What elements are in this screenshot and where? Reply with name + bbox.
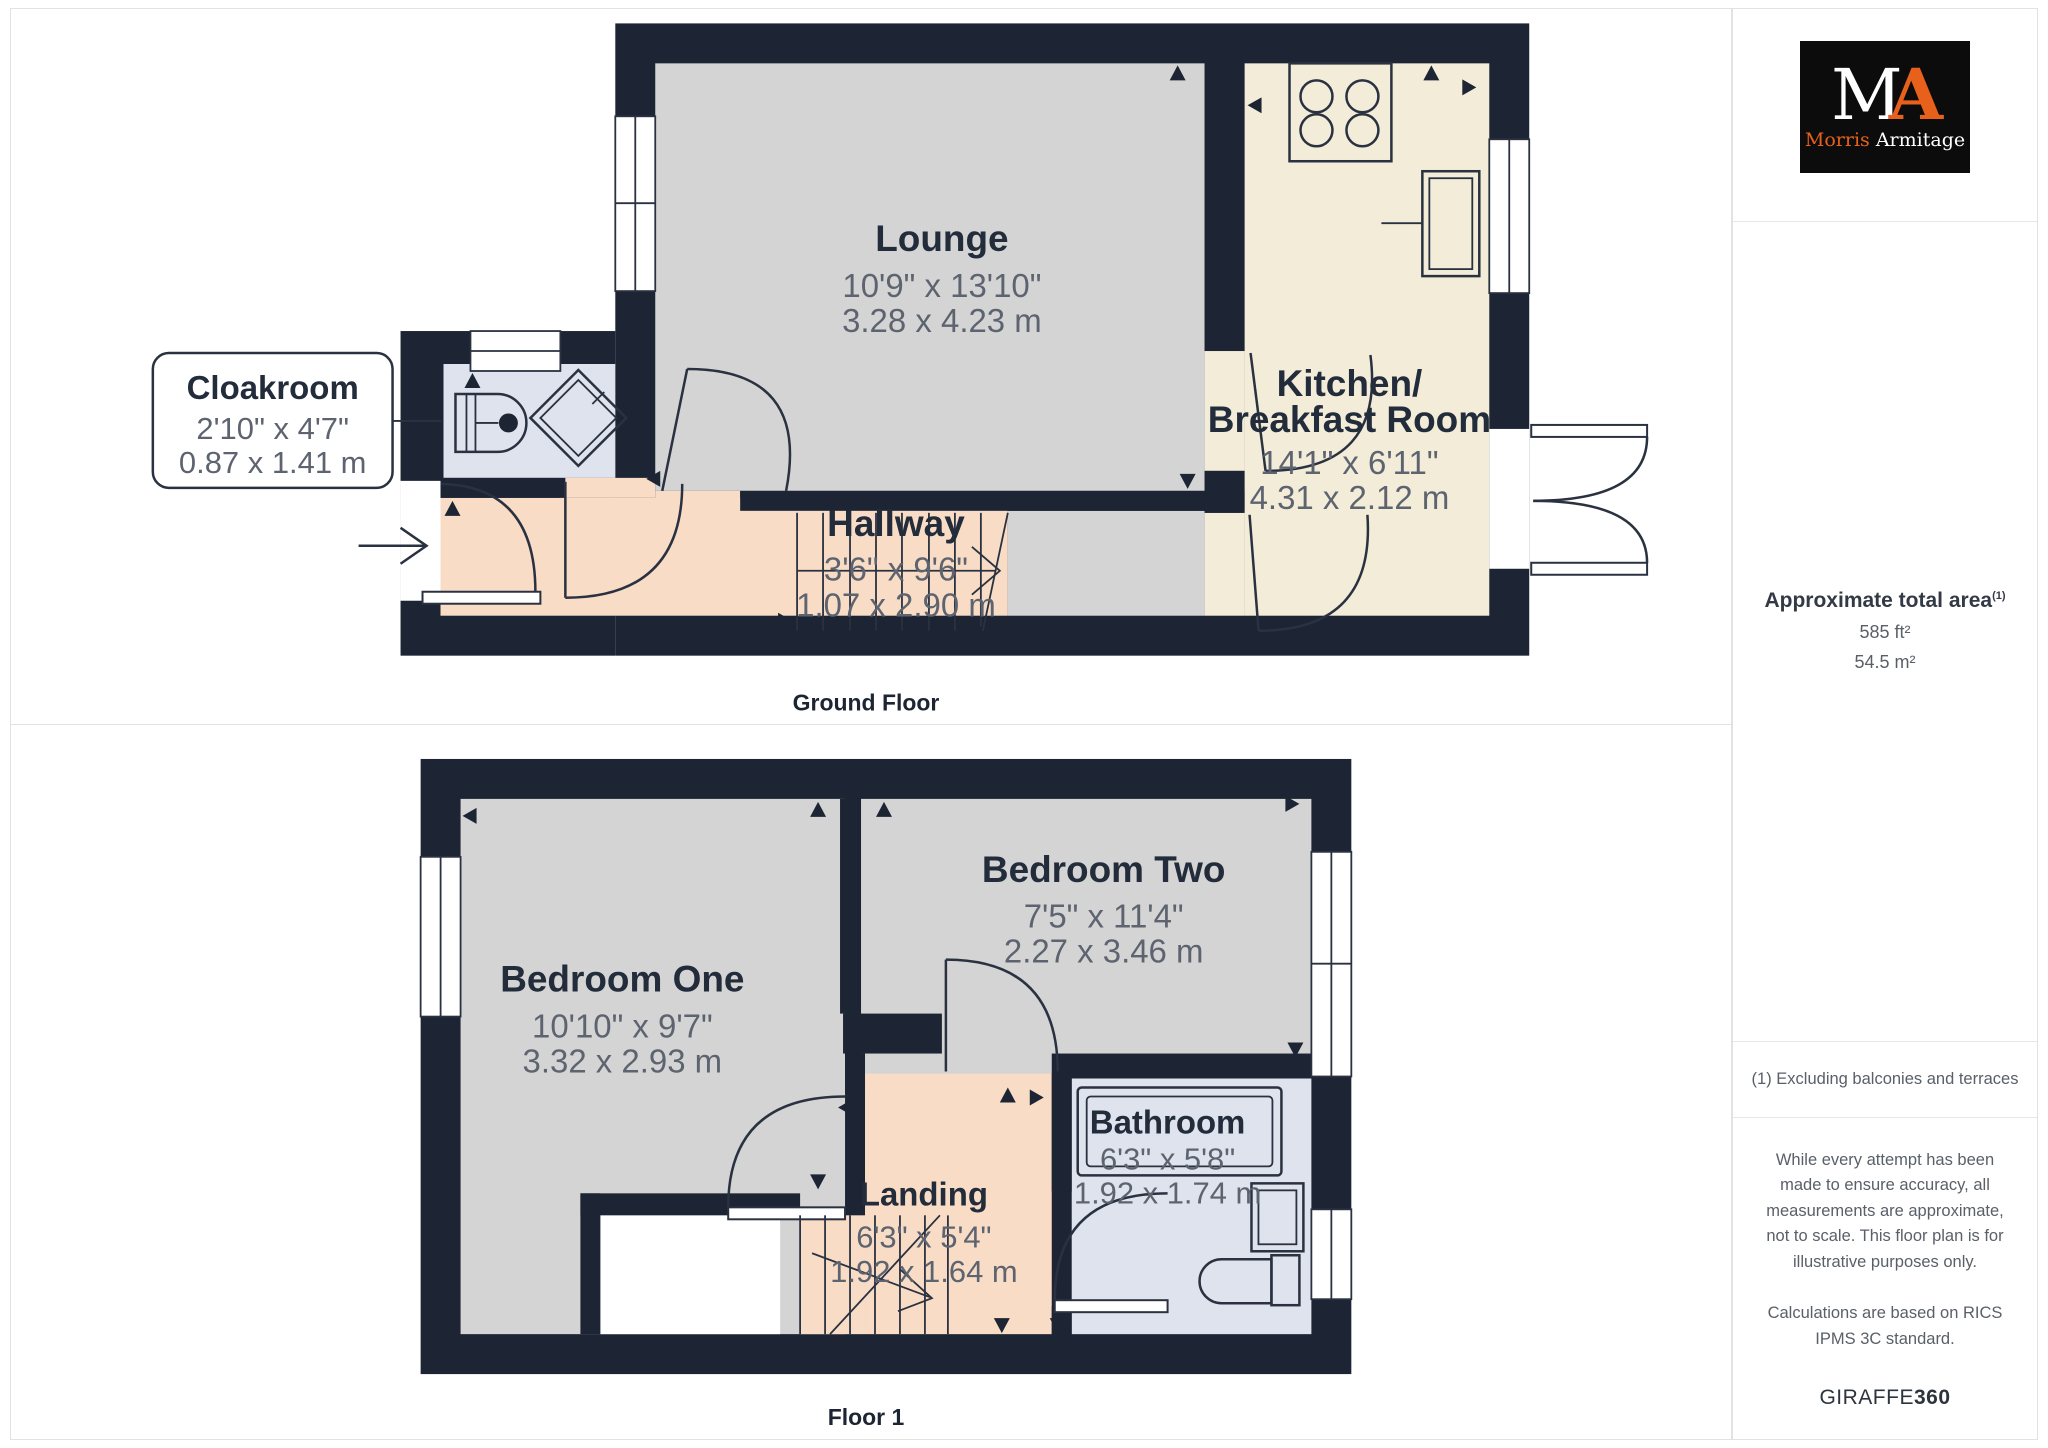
landing-label: Landing [860, 1175, 988, 1212]
bathroom-dim-imperial: 6'3" x 5'8" [1100, 1141, 1235, 1176]
total-area-title: Approximate total area(1) [1764, 589, 2005, 613]
window-bed1-left [421, 857, 461, 1017]
agency-logo-section: MA Morris Armitage [1733, 9, 2037, 222]
ground-floor-section: Cloakroom 2'10" x 4'7" 0.87 x 1.41 m Lou… [11, 9, 1731, 725]
floor-1-caption: Floor 1 [828, 1404, 905, 1430]
bedroom-one-labels: Bedroom One 10'10" x 9'7" 3.32 x 2.93 m [500, 959, 744, 1080]
wall-kitchen-stub [1205, 471, 1245, 513]
lounge-dim-metric: 3.28 x 4.23 m [842, 302, 1042, 339]
bedroom-one-dim-metric: 3.32 x 2.93 m [523, 1043, 723, 1080]
bedroom-one-dim-imperial: 10'10" x 9'7" [532, 1008, 713, 1045]
total-area-superscript: (1) [1992, 590, 2005, 602]
wall-bathroom-top [1052, 1054, 1312, 1079]
french-doorway-gap [1489, 429, 1529, 569]
wall-bed1-bed2 [840, 799, 861, 1014]
total-area-section: Approximate total area(1) 585 ft² 54.5 m… [1733, 222, 2037, 1041]
brand-giraffe: GIRAFFE [1819, 1386, 1914, 1409]
logo-name-morris: Morris [1805, 129, 1870, 151]
logo-letter-a: A [1889, 53, 1939, 136]
floorplan-page: Cloakroom 2'10" x 4'7" 0.87 x 1.41 m Lou… [0, 0, 2048, 1448]
wall-chimney-stub [843, 1014, 942, 1054]
area-note: (1) Excluding balconies and terraces [1733, 1041, 2037, 1117]
disclaimer-section: While every attempt has been made to ens… [1733, 1117, 2037, 1439]
window-lounge-left [615, 116, 655, 291]
giraffe360-brand: GIRAFFE360 [1753, 1382, 2017, 1415]
door-french-kitchen [1531, 425, 1647, 575]
brand-360: 360 [1914, 1386, 1951, 1409]
bedroom-one-label: Bedroom One [500, 959, 744, 1000]
wall-void-left [580, 1193, 600, 1334]
bathroom-dim-metric: 1.92 x 1.74 m [1074, 1175, 1261, 1210]
disclaimer-text-1: While every attempt has been made to ens… [1753, 1148, 2017, 1276]
stair-void [600, 1215, 780, 1334]
agency-logo-initials: MA [1831, 63, 1939, 127]
agency-logo-name: Morris Armitage [1805, 129, 1965, 151]
floorplan-panel: Cloakroom 2'10" x 4'7" 0.87 x 1.41 m Lou… [10, 8, 1732, 1440]
floor-1-section: Bedroom One 10'10" x 9'7" 3.32 x 2.93 m … [11, 725, 1731, 1440]
cloakroom-dim-imperial: 2'10" x 4'7" [196, 411, 349, 446]
hallway-dim-metric: 1.07 x 2.90 m [796, 587, 996, 624]
window-kitchen-right [1489, 139, 1529, 293]
wall-cloakroom-bottom [441, 478, 566, 498]
lounge-label: Lounge [875, 218, 1008, 259]
info-sidebar: MA Morris Armitage Approximate total are… [1732, 8, 2038, 1440]
disclaimer-text-2: Calculations are based on RICS IPMS 3C s… [1753, 1301, 2017, 1352]
room-kitchen [1205, 63, 1490, 615]
lounge-dim-imperial: 10'9" x 13'10" [842, 267, 1041, 304]
ground-floor-caption: Ground Floor [793, 690, 940, 716]
kitchen-dim-imperial: 14'1" x 6'11" [1260, 444, 1438, 481]
landing-dim-metric: 1.92 x 1.64 m [830, 1254, 1017, 1289]
floor-1-plan: Bedroom One 10'10" x 9'7" 3.32 x 2.93 m … [11, 725, 1731, 1440]
hallway-dim-imperial: 3'6" x 9'6" [824, 551, 968, 588]
bedroom-two-dim-imperial: 7'5" x 11'4" [1024, 898, 1184, 935]
agency-logo: MA Morris Armitage [1800, 41, 1970, 173]
cloakroom-callout: Cloakroom 2'10" x 4'7" 0.87 x 1.41 m [153, 353, 442, 488]
window-cloakroom-top [470, 331, 560, 371]
hallway-label: Hallway [827, 503, 965, 544]
total-area-metric: 54.5 m² [1854, 652, 1915, 673]
wall-lounge-kitchen [1205, 63, 1245, 351]
window-bathroom-right [1311, 1209, 1351, 1299]
ground-floor-plan: Cloakroom 2'10" x 4'7" 0.87 x 1.41 m Lou… [11, 9, 1731, 724]
total-area-imperial: 585 ft² [1859, 622, 1910, 643]
kitchen-dim-metric: 4.31 x 2.12 m [1250, 479, 1450, 516]
total-area-title-text: Approximate total area [1764, 589, 1992, 612]
cloakroom-label: Cloakroom [187, 369, 359, 406]
bathroom-labels: Bathroom 6'3" x 5'8" 1.92 x 1.74 m [1074, 1103, 1261, 1210]
kitchen-label-line2: Breakfast Room [1208, 399, 1491, 440]
landing-dim-imperial: 6'3" x 5'4" [856, 1219, 991, 1254]
kitchen-label-line1: Kitchen/ [1277, 363, 1423, 404]
window-bed2-right [1311, 852, 1351, 1077]
logo-name-armitage: Armitage [1876, 129, 1965, 151]
bedroom-two-label: Bedroom Two [982, 849, 1226, 890]
bedroom-two-dim-metric: 2.27 x 3.46 m [1004, 933, 1204, 970]
wall-bed1-landing-stub [845, 1054, 865, 1094]
bathroom-label: Bathroom [1090, 1103, 1246, 1140]
cloakroom-dim-metric: 0.87 x 1.41 m [179, 445, 367, 480]
wall-bathroom-left-upper [1052, 1079, 1072, 1192]
wall-lounge-hallway [740, 491, 1244, 511]
